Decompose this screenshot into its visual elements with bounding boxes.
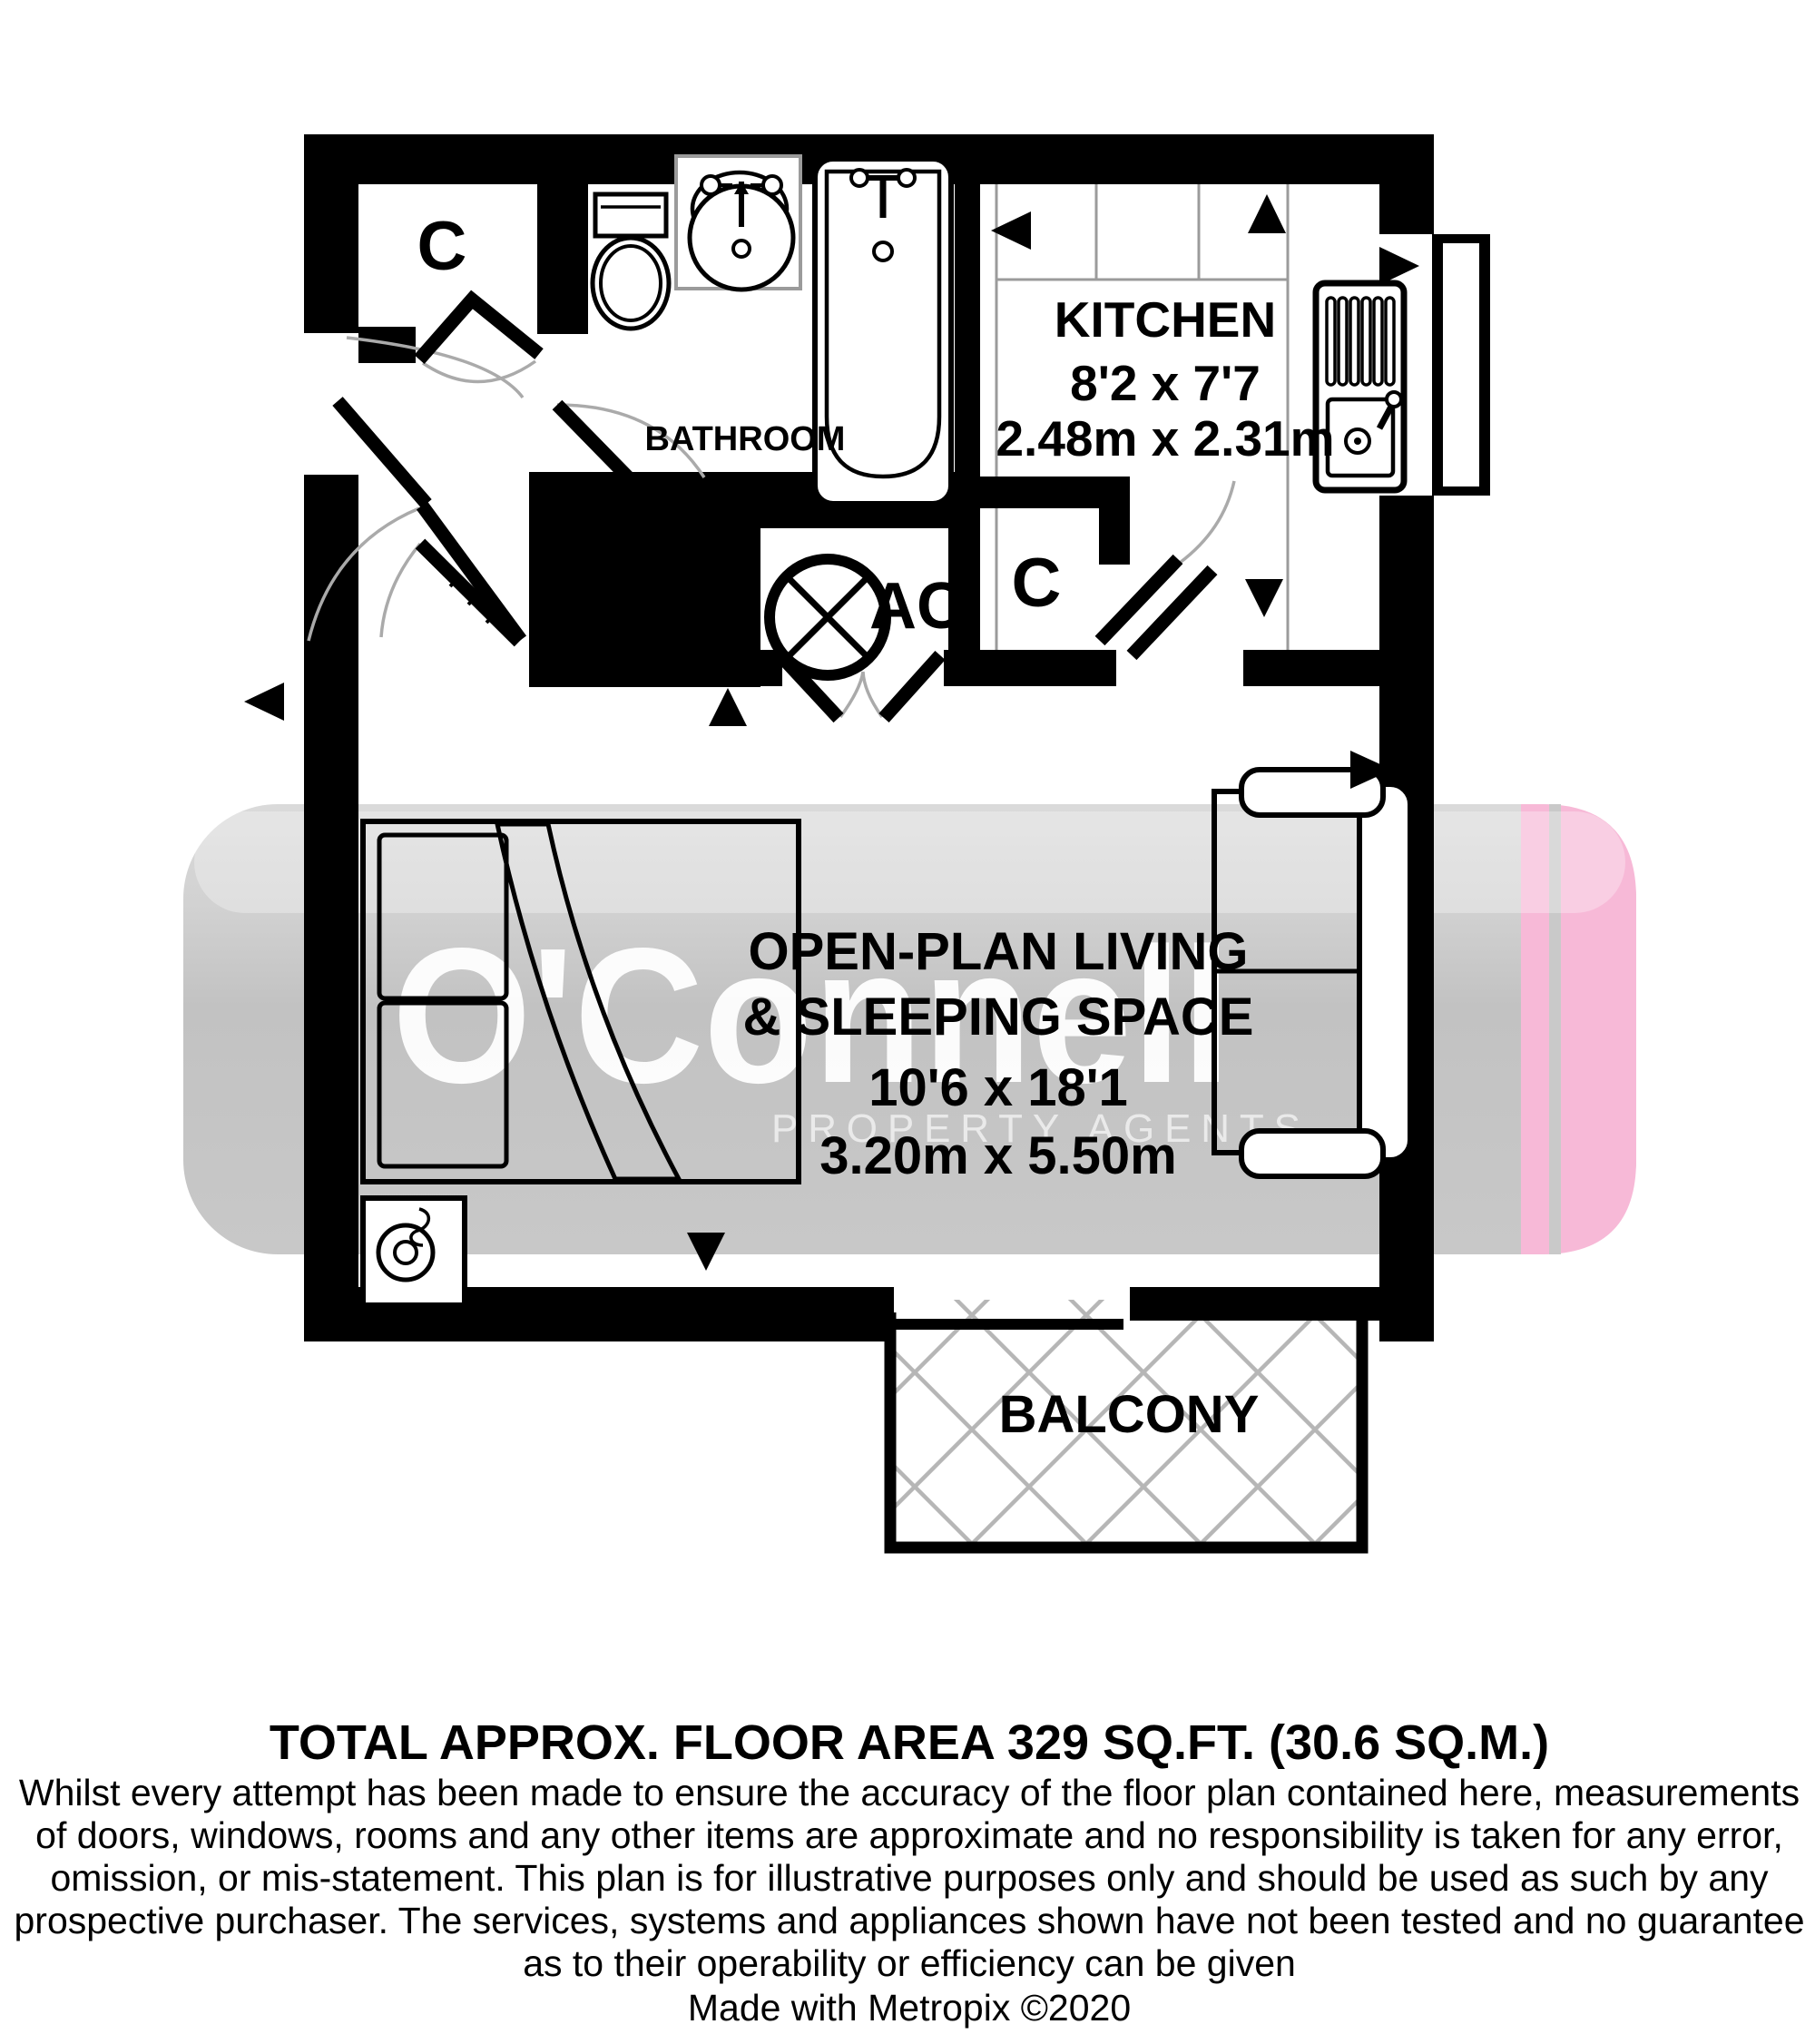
total-area-text: TOTAL APPROX. FLOOR AREA 329 SQ.FT. (30.… bbox=[270, 1715, 1549, 1770]
arrow-living-left-icon bbox=[244, 683, 284, 721]
living-label-line2: & SLEEPING SPACE bbox=[743, 988, 1254, 1047]
wall-outer-bottom-right bbox=[1130, 1287, 1379, 1321]
arrow-kitchen-up-icon bbox=[1248, 194, 1286, 233]
bathtub-overflow bbox=[874, 242, 892, 260]
kitchen-label: KITCHEN bbox=[1055, 291, 1276, 348]
disclaimer-line-5: as to their operability or efficiency ca… bbox=[523, 1942, 1296, 1984]
wall-closet1-bottom-stub bbox=[358, 327, 416, 363]
toilet-icon bbox=[593, 194, 669, 329]
window-cap-bottom bbox=[1432, 486, 1490, 496]
bathtub-knob-right bbox=[898, 170, 915, 186]
kitchen-sink-drain-dot bbox=[1354, 437, 1361, 445]
wall-bathroom-kitchen-divider bbox=[955, 134, 980, 528]
living-label-line1: OPEN-PLAN LIVING bbox=[748, 922, 1248, 981]
floorplan-drawing: O'Connell PROPERTY AGENTS BALCONY bbox=[0, 0, 1815, 2044]
wall-outer-left-upper bbox=[304, 134, 358, 333]
window-cap-top bbox=[1432, 234, 1490, 243]
wall-living-divider-right bbox=[1243, 650, 1379, 686]
wall-living-divider-left bbox=[980, 650, 1116, 686]
ac-symbol-icon bbox=[770, 559, 886, 675]
closet1-label: C bbox=[417, 208, 467, 285]
floorplan-page: O'Connell PROPERTY AGENTS BALCONY bbox=[0, 0, 1815, 2044]
wall-closet1-right bbox=[537, 134, 588, 334]
living-dims-metric: 3.20m x 5.50m bbox=[819, 1126, 1176, 1185]
kitchen-dims-metric: 2.48m x 2.31m bbox=[996, 410, 1334, 467]
washer-drum-inner bbox=[395, 1242, 417, 1263]
kitchen-dims-imperial: 8'2 x 7'7 bbox=[1070, 355, 1261, 411]
living-dims-imperial: 10'6 x 18'1 bbox=[868, 1058, 1128, 1117]
sofa-armrest-bottom bbox=[1241, 1131, 1383, 1176]
wall-outer-left-lower bbox=[304, 475, 358, 1341]
closet2-door-leaf-2 bbox=[1132, 570, 1212, 655]
window-pane-line-2 bbox=[1479, 234, 1490, 496]
disclaimer-line-2: of doors, windows, rooms and any other i… bbox=[35, 1814, 1783, 1856]
wall-closet2-right bbox=[1099, 477, 1130, 565]
disclaimer-line-1: Whilst every attempt has been made to en… bbox=[19, 1772, 1800, 1813]
bathroom-sink-icon bbox=[676, 156, 800, 290]
window-pane-line-1 bbox=[1432, 234, 1443, 496]
sink-handle-left bbox=[701, 176, 720, 194]
closet2-label: C bbox=[1012, 545, 1062, 622]
sink-handle-right bbox=[763, 176, 781, 194]
toilet-bowl-inner bbox=[601, 246, 661, 320]
wall-vdoor-jamb-right bbox=[944, 650, 980, 686]
metropix-credit-text: Made with Metropix ©2020 bbox=[688, 1987, 1131, 2029]
arrow-living-up-icon bbox=[709, 688, 747, 726]
vestibule-door-arcs bbox=[840, 672, 882, 717]
toilet-cistern bbox=[595, 194, 666, 236]
closet1-door-arc bbox=[423, 361, 535, 382]
wall-hall-block bbox=[529, 499, 760, 687]
footer: TOTAL APPROX. FLOOR AREA 329 SQ.FT. (30.… bbox=[14, 1715, 1804, 2029]
disclaimer-line-3: omission, or mis-statement. This plan is… bbox=[50, 1857, 1769, 1899]
closet1-door-leaf bbox=[419, 300, 539, 359]
living-door-leaf bbox=[420, 544, 519, 642]
sofa-back bbox=[1359, 784, 1410, 1160]
vestibule-door-leaf-right bbox=[884, 655, 940, 718]
bathtub-knob-left bbox=[851, 170, 868, 186]
washing-machine-icon bbox=[363, 1198, 465, 1305]
disclaimer-line-4: prospective purchaser. The services, sys… bbox=[14, 1900, 1804, 1941]
living-door-arc bbox=[381, 544, 420, 637]
balcony: BALCONY bbox=[890, 1300, 1362, 1548]
ac-label: AC bbox=[869, 570, 964, 643]
arrow-kitchen-down-icon bbox=[1245, 579, 1283, 617]
wall-closet2-top bbox=[980, 477, 1099, 508]
bathroom-label: BATHROOM bbox=[645, 420, 846, 458]
closet2-door-arc bbox=[1180, 481, 1234, 563]
sink-drain bbox=[733, 241, 750, 257]
balcony-label: BALCONY bbox=[999, 1385, 1260, 1444]
